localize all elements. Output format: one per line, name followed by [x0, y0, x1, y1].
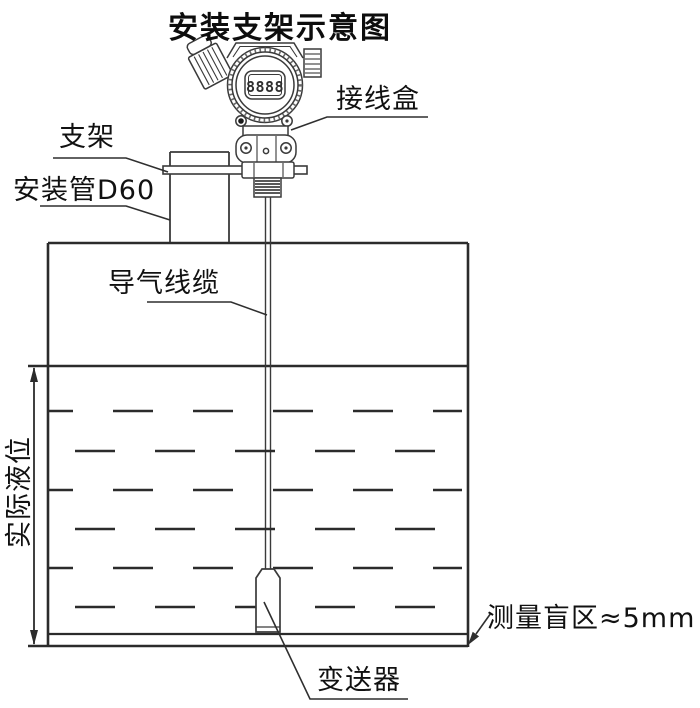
label-air-cable: 导气线缆 — [108, 269, 220, 299]
lcd-display-value: 8888 — [246, 78, 284, 96]
blind-zone-arrow-icon — [468, 632, 479, 645]
label-mounting-pipe: 安装管D60 — [13, 176, 155, 206]
label-blind-zone: 测量盲区≈5mm — [487, 604, 695, 634]
page-title: 安装支架示意图 — [150, 3, 410, 47]
label-junction-box: 接线盒 — [336, 85, 420, 115]
lcd-display: 8888 — [245, 71, 285, 99]
air-cable-line — [266, 196, 271, 572]
bracket-leader — [53, 158, 168, 172]
hex-nut — [242, 162, 294, 178]
junction-box-leader — [291, 117, 428, 130]
threaded-stub — [254, 178, 281, 197]
arrow-up-icon — [30, 367, 38, 382]
air-cable-leader — [147, 302, 267, 315]
mounting-pipe-leader — [40, 206, 170, 220]
arrow-down-icon — [30, 630, 38, 645]
tank-outline — [28, 243, 468, 647]
process-yoke — [236, 135, 296, 163]
liquid-dashes — [48, 411, 462, 607]
label-bracket: 支架 — [59, 123, 115, 153]
label-transmitter: 变送器 — [317, 666, 401, 696]
side-connector-block — [304, 49, 321, 77]
installation-diagram: 8888 — [0, 0, 700, 708]
label-actual-level: 实际液位 — [6, 434, 34, 550]
probe-sensor — [256, 569, 280, 632]
